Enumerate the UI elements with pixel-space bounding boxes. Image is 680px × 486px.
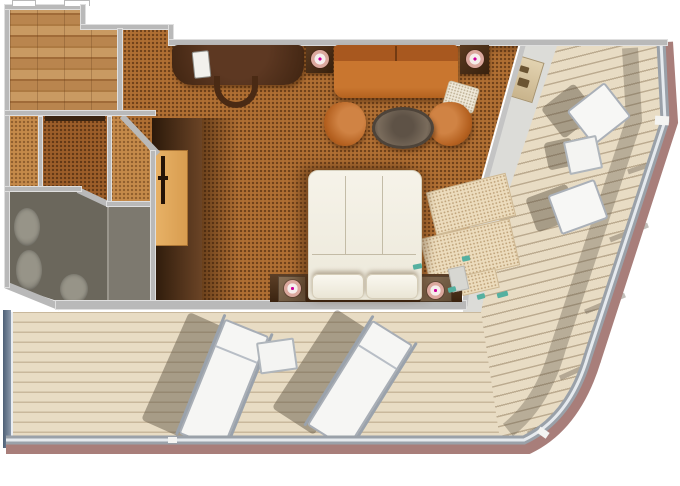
wall-bathroom-right-top — [106, 201, 154, 207]
railing-post — [655, 116, 669, 126]
lamp-sofa-left — [311, 50, 329, 68]
wall-top-middle — [80, 24, 174, 30]
bed-pillow-left — [312, 274, 364, 299]
lamp-sofa-right — [466, 50, 484, 68]
round-coffee-table — [372, 107, 434, 149]
sofa-cushion-seam — [395, 46, 397, 61]
wall-diagonal-bottom-left — [6, 285, 60, 307]
bed-seam-horizontal — [312, 254, 416, 255]
lamp-nightstand-right — [427, 282, 444, 299]
bed-seam-vertical-1 — [345, 176, 346, 254]
wall-foyer-right — [117, 28, 123, 116]
armchair-right — [428, 102, 472, 146]
armchair-left — [324, 102, 366, 146]
telephone — [192, 50, 212, 79]
door-marker-top-left — [12, 0, 36, 6]
door-marker-entry — [64, 0, 90, 6]
wall-foyer-bottom — [4, 110, 156, 116]
railing-post — [168, 437, 177, 443]
wall-closet-divider-1 — [38, 116, 43, 192]
wall-left — [4, 4, 10, 288]
wall-bathroom-top — [4, 186, 82, 192]
bed-seam-vertical-2 — [382, 176, 383, 254]
bed-pillow-right — [366, 274, 418, 299]
wall-closet-divider-2 — [107, 116, 112, 204]
floor-plan-canvas — [0, 0, 680, 486]
wall-bathroom-right — [150, 150, 156, 304]
wall-diagonal-closet — [122, 116, 158, 154]
lamp-nightstand-left — [284, 280, 301, 297]
